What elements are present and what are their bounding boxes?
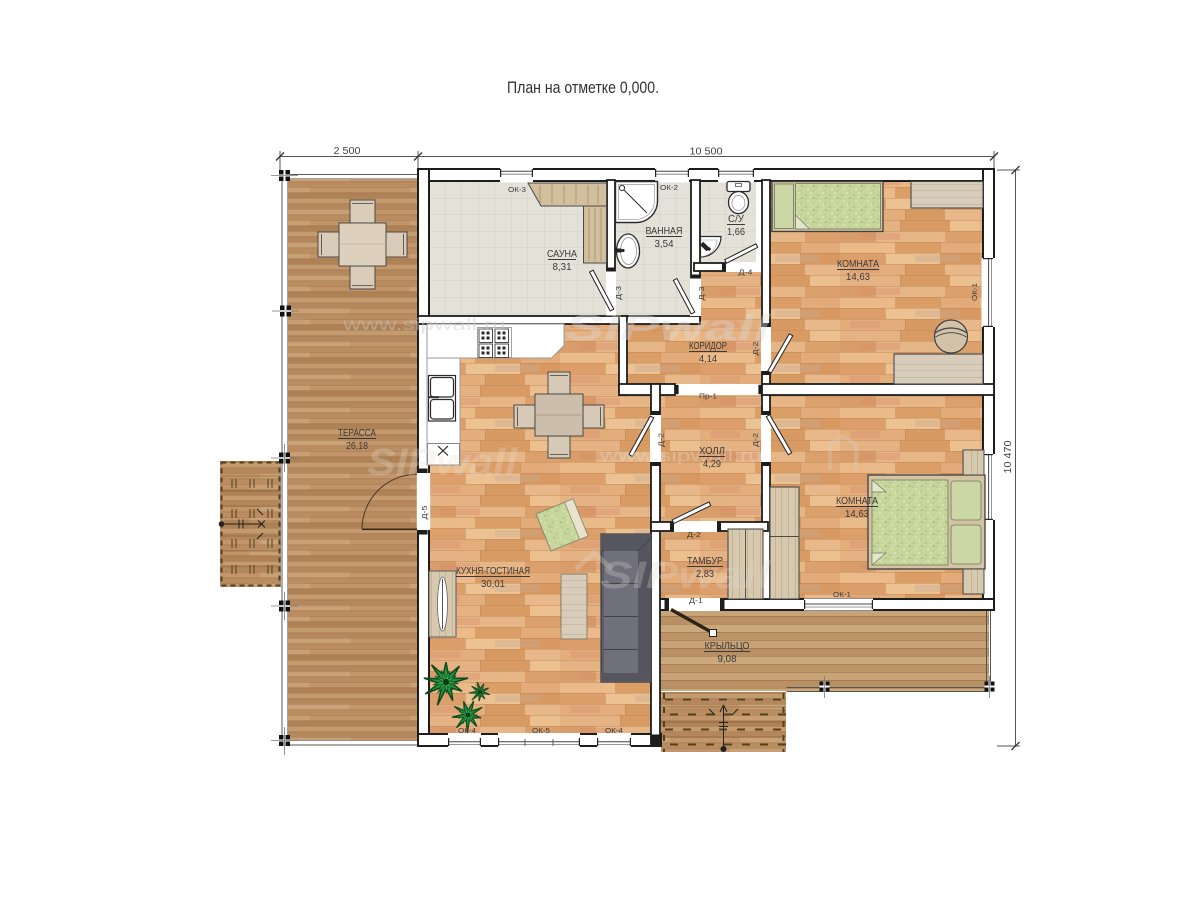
svg-text:САУНА: САУНА: [547, 248, 577, 260]
svg-text:ОК-5: ОК-5: [532, 726, 550, 735]
svg-text:КОМНАТА: КОМНАТА: [836, 495, 878, 507]
svg-text:ОК-4: ОК-4: [458, 726, 476, 735]
svg-text:10 470: 10 470: [1003, 440, 1014, 473]
svg-text:ТЕРАССА: ТЕРАССА: [338, 427, 376, 439]
svg-text:ТАМБУР: ТАМБУР: [687, 555, 723, 567]
svg-text:Д-3: Д-3: [614, 286, 623, 300]
svg-text:Д-2: Д-2: [657, 433, 666, 447]
svg-text:14,63: 14,63: [846, 271, 870, 283]
svg-text:ОК-1: ОК-1: [833, 590, 851, 599]
svg-text:www.sipwall.ru: www.sipwall.ru: [342, 315, 506, 334]
svg-text:2 500: 2 500: [334, 146, 361, 157]
svg-text:30,01: 30,01: [481, 578, 505, 590]
svg-text:SIPwall: SIPwall: [600, 555, 772, 597]
svg-text:9,08: 9,08: [718, 653, 737, 665]
svg-text:План на отметке 0,000.: План на отметке 0,000.: [507, 78, 659, 97]
svg-text:Д-1: Д-1: [689, 596, 703, 605]
svg-text:8,31: 8,31: [553, 261, 572, 273]
svg-text:КОМНАТА: КОМНАТА: [837, 258, 879, 270]
svg-text:www.sipwall.ru: www.sipwall.ru: [599, 446, 762, 465]
svg-text:4,29: 4,29: [703, 458, 721, 470]
svg-text:Д-2: Д-2: [687, 530, 701, 539]
svg-text:Д-3: Д-3: [697, 287, 706, 301]
svg-text:4,14: 4,14: [699, 353, 717, 365]
svg-text:Пр-1: Пр-1: [699, 392, 717, 401]
svg-text:ХОЛЛ: ХОЛЛ: [699, 445, 725, 457]
svg-text:КРЫЛЬЦО: КРЫЛЬЦО: [705, 640, 750, 652]
svg-text:ВАННАЯ: ВАННАЯ: [646, 225, 683, 237]
svg-text:SIPwall: SIPwall: [565, 307, 772, 348]
svg-text:SIPwall: SIPwall: [367, 442, 519, 484]
svg-text:3,54: 3,54: [655, 238, 674, 250]
svg-text:1,66: 1,66: [727, 226, 745, 238]
svg-text:ОК-3: ОК-3: [508, 185, 526, 194]
svg-text:10 500: 10 500: [690, 147, 723, 158]
svg-text:14,63: 14,63: [845, 508, 869, 520]
svg-text:ОК-2: ОК-2: [660, 183, 678, 192]
svg-text:26,18: 26,18: [346, 440, 368, 452]
svg-text:Д-2: Д-2: [751, 433, 760, 447]
svg-text:КОРИДОР: КОРИДОР: [689, 340, 727, 352]
svg-text:С/У: С/У: [728, 213, 744, 225]
svg-text:Д-2: Д-2: [751, 342, 760, 356]
svg-text:Д-5: Д-5: [420, 506, 429, 520]
svg-text:ОК-4: ОК-4: [605, 726, 623, 735]
svg-text:Д-4: Д-4: [739, 268, 753, 277]
svg-text:2,83: 2,83: [696, 568, 714, 580]
svg-text:ОК-1: ОК-1: [970, 283, 979, 301]
svg-text:КУХНЯ-ГОСТИНАЯ: КУХНЯ-ГОСТИНАЯ: [456, 565, 530, 577]
